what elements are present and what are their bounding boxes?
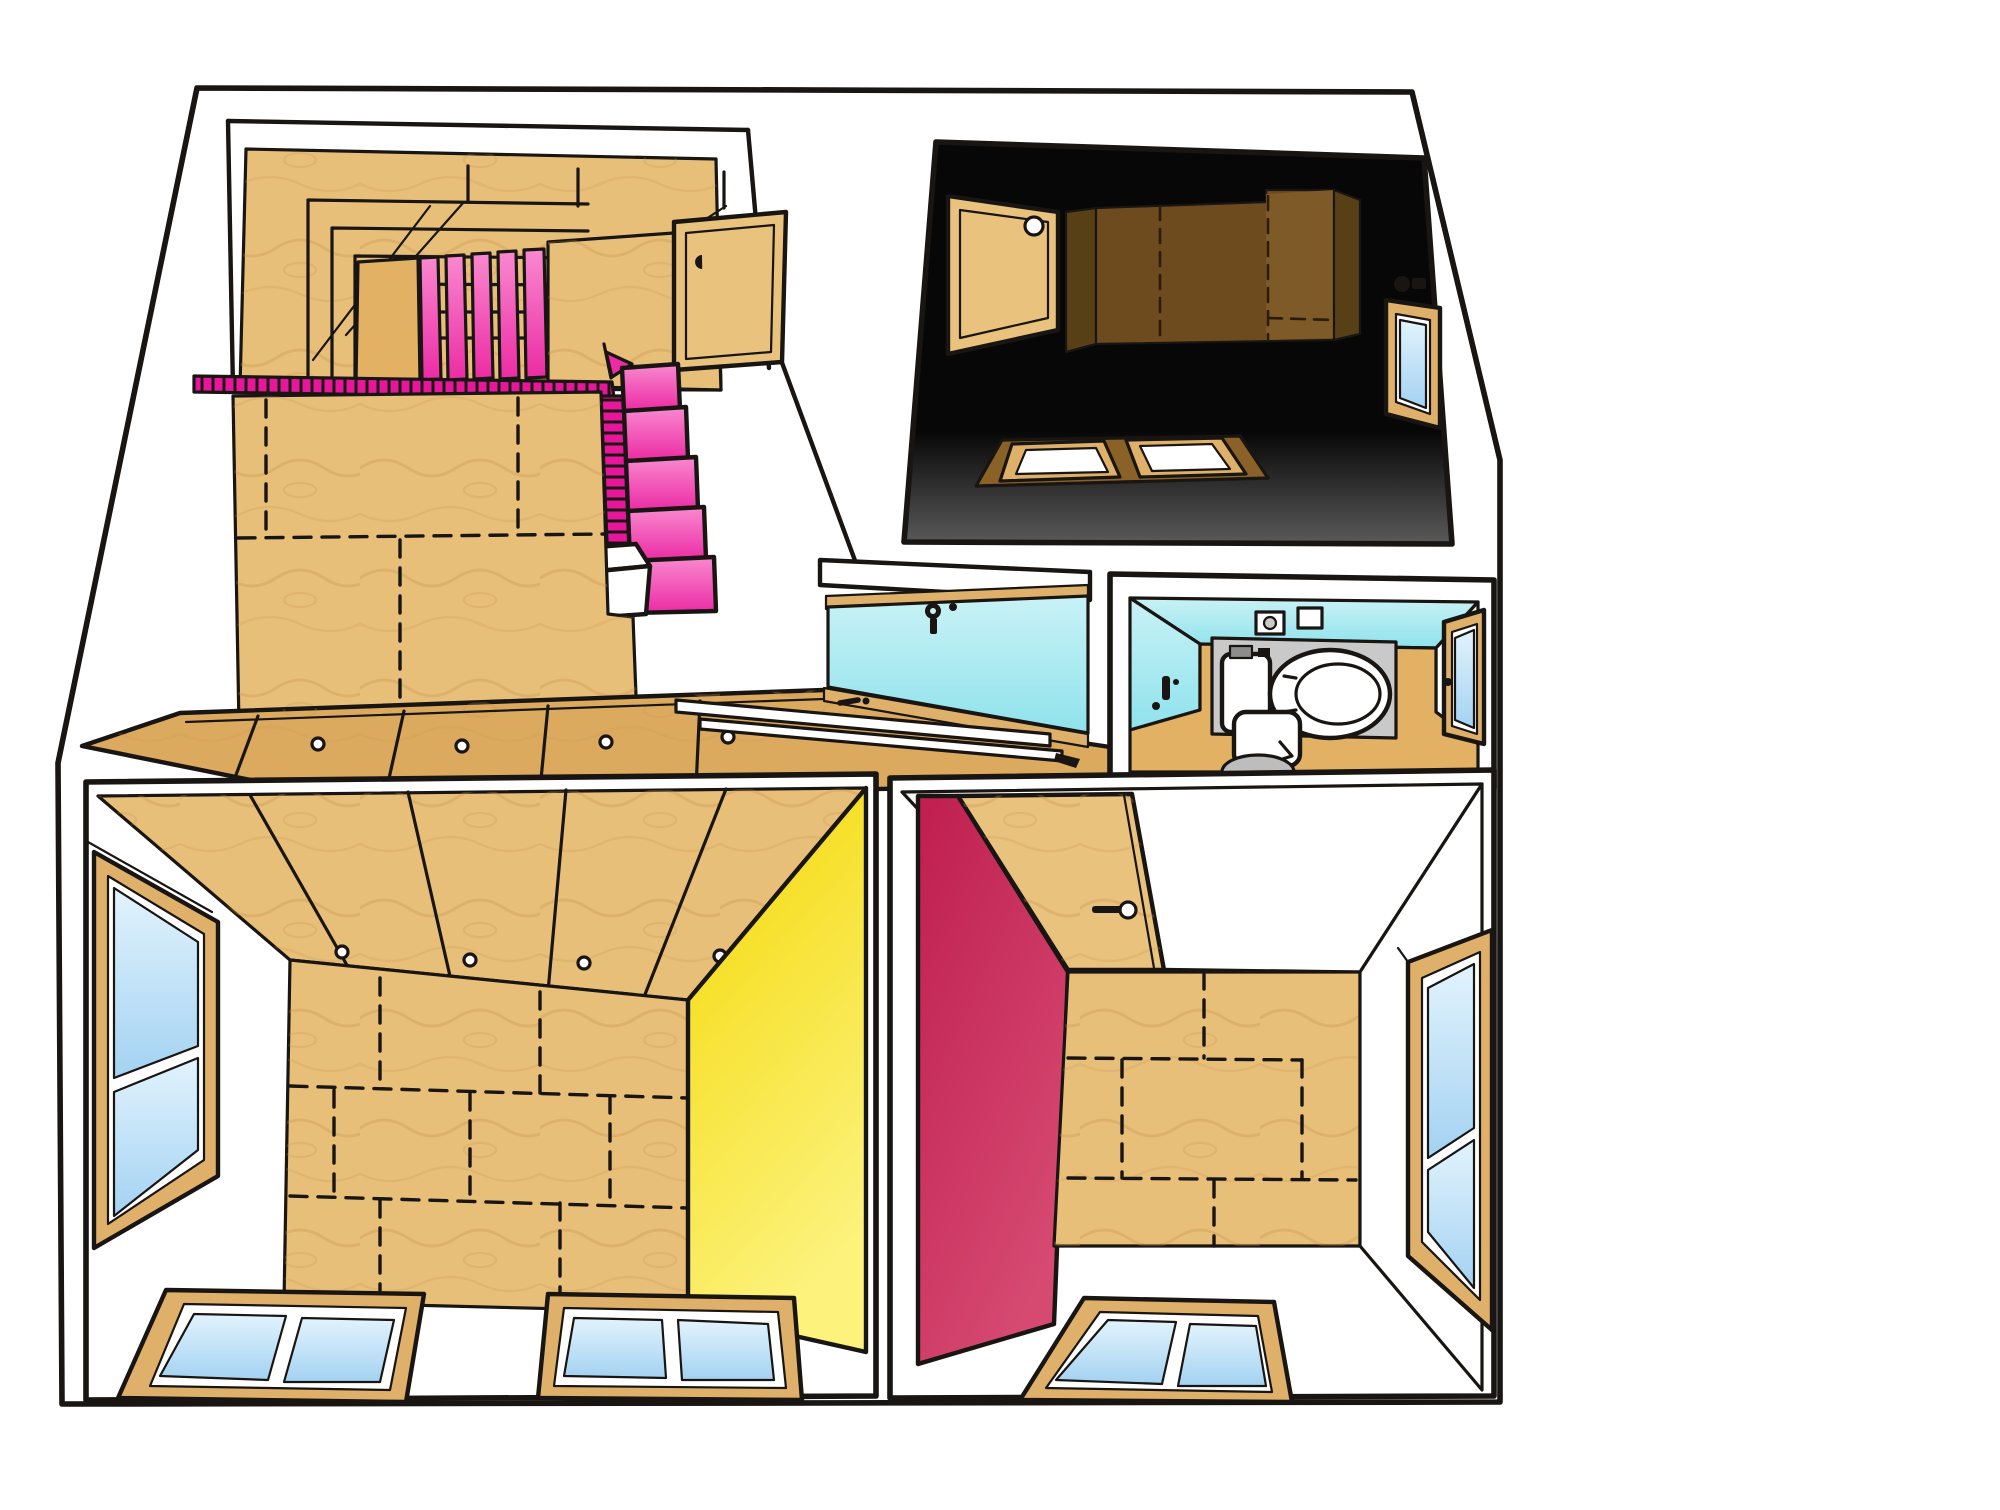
panel-side-wedge-right	[1334, 190, 1360, 340]
dark-room-window	[1386, 300, 1440, 428]
house-cutaway-illustration	[0, 0, 2000, 1510]
room-bedroom	[890, 770, 1494, 1402]
bathroom-window	[1444, 610, 1484, 744]
wall-box	[1298, 608, 1322, 628]
stair-landing-panel	[356, 258, 420, 382]
room-bathroom	[1110, 574, 1494, 789]
door-lever-handle-icon	[1092, 906, 1122, 913]
window-handle-icon	[1444, 678, 1452, 686]
front-window-1	[118, 1290, 424, 1402]
upper-stair-treads	[420, 249, 547, 380]
stairwell-cupboard-door	[674, 212, 786, 370]
flush-button-icon	[1258, 648, 1270, 657]
illustration-stage	[0, 0, 2000, 1510]
living-back-wall-grain	[284, 960, 688, 1312]
door-handle-rose	[1120, 902, 1136, 918]
room-dark-bedroom	[904, 142, 1452, 544]
toilet-paper-holder	[1256, 612, 1284, 634]
track-stopper	[840, 700, 858, 703]
floor-skylight-window-1	[1000, 441, 1120, 481]
front-window-2	[538, 1294, 802, 1400]
hatch-finger-hole	[1025, 217, 1043, 235]
room-living	[86, 774, 876, 1402]
lower-wall-grain	[233, 392, 637, 726]
panel-side-wedge-left	[1066, 208, 1096, 352]
bedroom-floor-grain	[1054, 972, 1360, 1246]
toilet-seat	[1296, 664, 1380, 724]
cistern-cap	[1230, 646, 1252, 658]
